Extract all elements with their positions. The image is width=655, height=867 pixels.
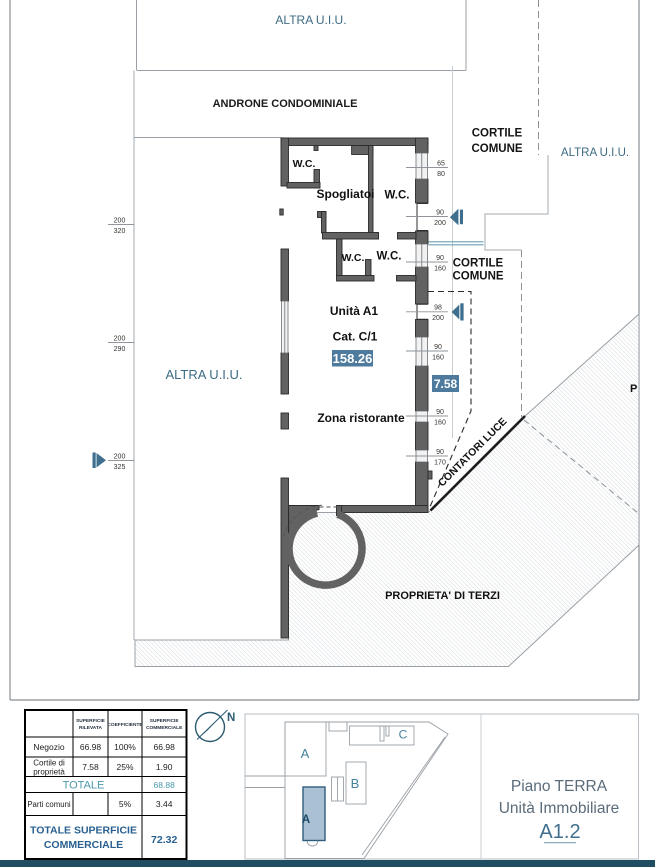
svg-text:68.88: 68.88 bbox=[154, 780, 176, 790]
svg-text:65: 65 bbox=[437, 161, 445, 168]
svg-text:90: 90 bbox=[436, 449, 444, 456]
svg-text:7.58: 7.58 bbox=[434, 377, 458, 391]
svg-text:P: P bbox=[630, 383, 637, 395]
svg-text:200: 200 bbox=[114, 336, 126, 343]
svg-text:RILEVATA: RILEVATA bbox=[79, 725, 102, 731]
svg-text:B: B bbox=[351, 776, 360, 791]
svg-text:200: 200 bbox=[114, 454, 126, 461]
svg-text:80: 80 bbox=[437, 171, 445, 178]
svg-text:100%: 100% bbox=[114, 742, 136, 752]
svg-text:200: 200 bbox=[432, 315, 444, 322]
svg-text:160: 160 bbox=[434, 420, 446, 427]
svg-text:W.C.: W.C. bbox=[342, 252, 365, 264]
svg-text:Parti comuni: Parti comuni bbox=[27, 800, 71, 809]
svg-text:ALTRA U.I.U.: ALTRA U.I.U. bbox=[561, 147, 629, 159]
svg-text:Unità Immobiliare: Unità Immobiliare bbox=[499, 800, 620, 817]
svg-text:320: 320 bbox=[114, 228, 126, 235]
svg-text:COEFFICIENTE: COEFFICIENTE bbox=[107, 722, 143, 728]
svg-text:CORTILE: CORTILE bbox=[453, 258, 504, 270]
svg-text:160: 160 bbox=[432, 355, 444, 362]
svg-text:TOTALE: TOTALE bbox=[63, 780, 105, 792]
svg-text:5%: 5% bbox=[119, 799, 132, 809]
svg-text:proprietà: proprietà bbox=[33, 768, 65, 777]
svg-text:CORTILE: CORTILE bbox=[472, 128, 523, 140]
svg-text:325: 325 bbox=[114, 464, 126, 471]
svg-text:3.44: 3.44 bbox=[156, 799, 173, 809]
svg-text:1.90: 1.90 bbox=[156, 762, 173, 772]
svg-text:TOTALE SUPERFICIE: TOTALE SUPERFICIE bbox=[30, 825, 137, 837]
svg-text:90: 90 bbox=[436, 210, 444, 217]
svg-text:90: 90 bbox=[436, 255, 444, 262]
svg-text:W.C.: W.C. bbox=[377, 251, 402, 263]
svg-text:COMUNE: COMUNE bbox=[471, 143, 522, 155]
svg-text:PROPRIETA' DI TERZI: PROPRIETA' DI TERZI bbox=[385, 590, 500, 602]
svg-text:SUPERFICIE: SUPERFICIE bbox=[76, 718, 106, 724]
svg-text:66.98: 66.98 bbox=[154, 742, 176, 752]
svg-text:90: 90 bbox=[436, 409, 444, 416]
svg-text:A1.2: A1.2 bbox=[539, 821, 580, 843]
svg-text:ALTRA U.I.U.: ALTRA U.I.U. bbox=[275, 13, 346, 27]
svg-text:290: 290 bbox=[114, 346, 126, 353]
svg-text:170: 170 bbox=[434, 460, 446, 467]
svg-text:98: 98 bbox=[434, 305, 442, 312]
svg-text:Spogliatoi: Spogliatoi bbox=[317, 187, 375, 201]
svg-text:25%: 25% bbox=[116, 762, 133, 772]
svg-text:COMMERCIALE: COMMERCIALE bbox=[146, 725, 183, 731]
svg-text:Negozio: Negozio bbox=[33, 742, 64, 752]
svg-text:ANDRONE CONDOMINIALE: ANDRONE CONDOMINIALE bbox=[213, 98, 358, 110]
svg-text:90: 90 bbox=[434, 344, 442, 351]
svg-text:158.26: 158.26 bbox=[333, 351, 373, 366]
svg-text:COMUNE: COMUNE bbox=[452, 271, 503, 283]
svg-text:A: A bbox=[302, 814, 310, 826]
svg-text:200: 200 bbox=[114, 218, 126, 225]
svg-text:N: N bbox=[227, 712, 235, 724]
svg-text:W.C.: W.C. bbox=[293, 158, 316, 170]
svg-text:Piano TERRA: Piano TERRA bbox=[511, 778, 608, 795]
svg-text:Zona ristorante: Zona ristorante bbox=[317, 411, 405, 425]
svg-text:7.58: 7.58 bbox=[82, 762, 99, 772]
svg-text:C: C bbox=[399, 728, 408, 742]
svg-text:COMMERCIALE: COMMERCIALE bbox=[44, 839, 123, 851]
svg-text:A: A bbox=[301, 746, 310, 761]
svg-text:200: 200 bbox=[434, 220, 446, 227]
svg-text:SUPERFICIE: SUPERFICIE bbox=[150, 718, 180, 724]
svg-text:160: 160 bbox=[434, 266, 446, 273]
svg-text:ALTRA U.I.U.: ALTRA U.I.U. bbox=[165, 367, 242, 382]
svg-text:Cat. C/1: Cat. C/1 bbox=[333, 330, 378, 344]
svg-text:66.98: 66.98 bbox=[80, 742, 102, 752]
svg-text:W.C.: W.C. bbox=[385, 190, 410, 202]
svg-text:72.32: 72.32 bbox=[151, 834, 177, 846]
svg-text:Unità A1: Unità A1 bbox=[330, 304, 379, 318]
svg-text:Cortile di: Cortile di bbox=[33, 759, 65, 768]
